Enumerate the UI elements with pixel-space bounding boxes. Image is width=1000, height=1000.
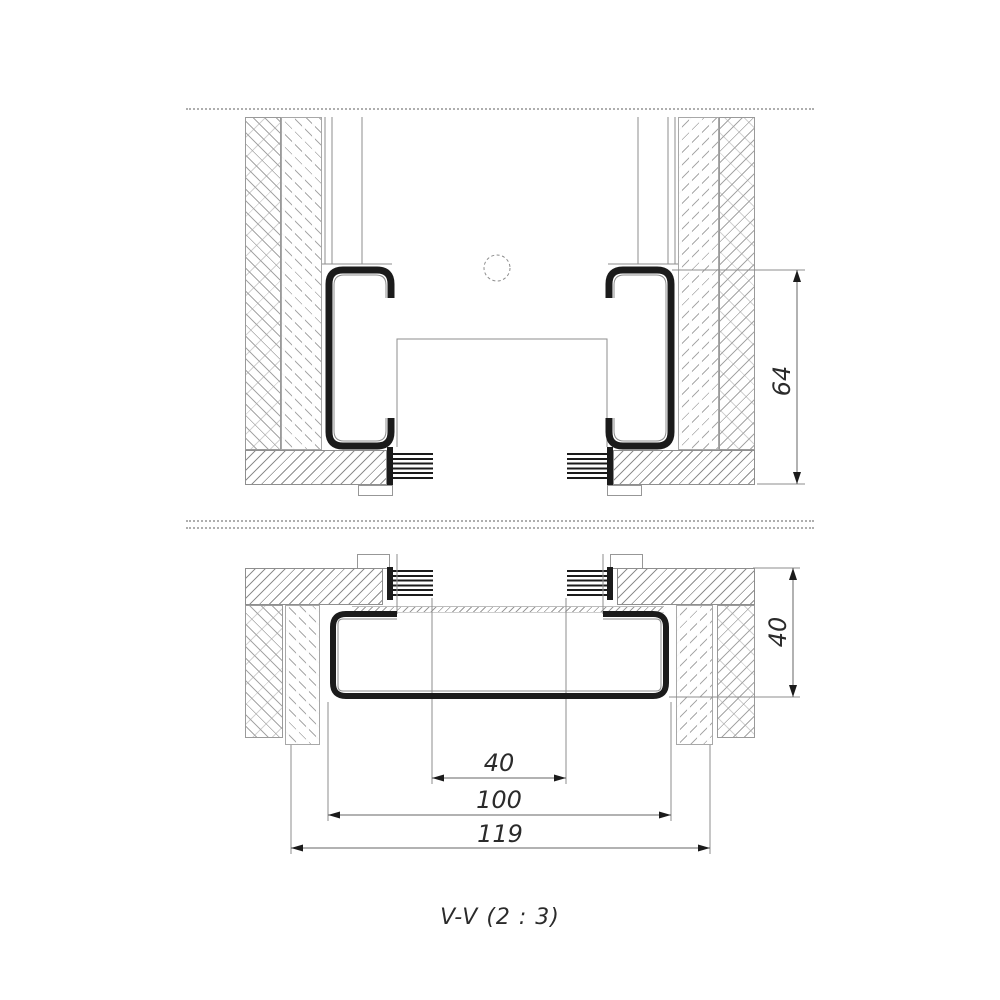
door-panel-slot xyxy=(397,339,607,447)
dim-label-40: 40 xyxy=(449,749,549,777)
dim-label-100: 100 xyxy=(449,786,549,814)
lip-edge-lines xyxy=(397,554,603,614)
c-profile-left-inner-contour xyxy=(334,275,386,441)
c-profile-right-inner-contour xyxy=(614,275,666,441)
frame-profile-right xyxy=(608,117,678,264)
dim-label-119: 119 xyxy=(450,820,550,848)
fastener-hole xyxy=(484,255,510,281)
c-profile-right xyxy=(609,270,671,446)
bottom-profile-inner-contour xyxy=(338,619,661,691)
dim-label-64: 64 xyxy=(758,354,806,408)
frame-profile-left xyxy=(322,117,392,264)
dim-label-40-vertical: 40 xyxy=(754,605,802,659)
technical-drawing-canvas: 64 40 40 100 119 V-V (2 : 3) xyxy=(0,0,1000,1000)
bottom-profile xyxy=(333,614,666,696)
thin-linework xyxy=(322,117,678,691)
section-view-caption: V-V (2 : 3) xyxy=(370,905,630,930)
c-track-profiles xyxy=(329,270,671,446)
c-profile-left xyxy=(329,270,391,446)
drawing-linework xyxy=(0,0,1000,1000)
